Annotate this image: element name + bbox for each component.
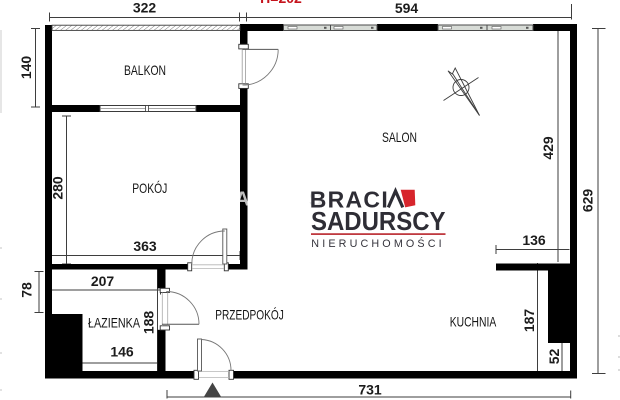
svg-text:SALON: SALON — [382, 129, 417, 145]
svg-text:207: 207 — [91, 273, 115, 289]
svg-text:136: 136 — [522, 232, 546, 248]
svg-text:KUCHNIA: KUCHNIA — [450, 314, 497, 330]
svg-text:187: 187 — [521, 309, 537, 333]
svg-text:188: 188 — [141, 311, 157, 335]
svg-text:PRZEDPOKÓJ: PRZEDPOKÓJ — [215, 307, 284, 323]
svg-text:363: 363 — [133, 238, 157, 254]
svg-text:140: 140 — [18, 56, 34, 80]
svg-text:NIERUCHOMOŚCI: NIERUCHOMOŚCI — [311, 237, 445, 250]
svg-text:731: 731 — [358, 382, 382, 398]
svg-text:78: 78 — [19, 282, 35, 298]
svg-text:429: 429 — [540, 136, 556, 160]
svg-text:594: 594 — [395, 0, 419, 16]
svg-text:322: 322 — [133, 0, 157, 16]
svg-text:POKÓJ: POKÓJ — [132, 180, 167, 196]
svg-text:146: 146 — [110, 344, 134, 360]
svg-text:SADURSCY: SADURSCY — [311, 206, 446, 236]
svg-text:H=202: H=202 — [260, 0, 302, 6]
svg-text:BALKON: BALKON — [124, 62, 166, 78]
svg-text:52: 52 — [546, 349, 562, 365]
svg-text:629: 629 — [580, 189, 596, 213]
svg-text:ŁAZIENKA: ŁAZIENKA — [88, 315, 140, 331]
